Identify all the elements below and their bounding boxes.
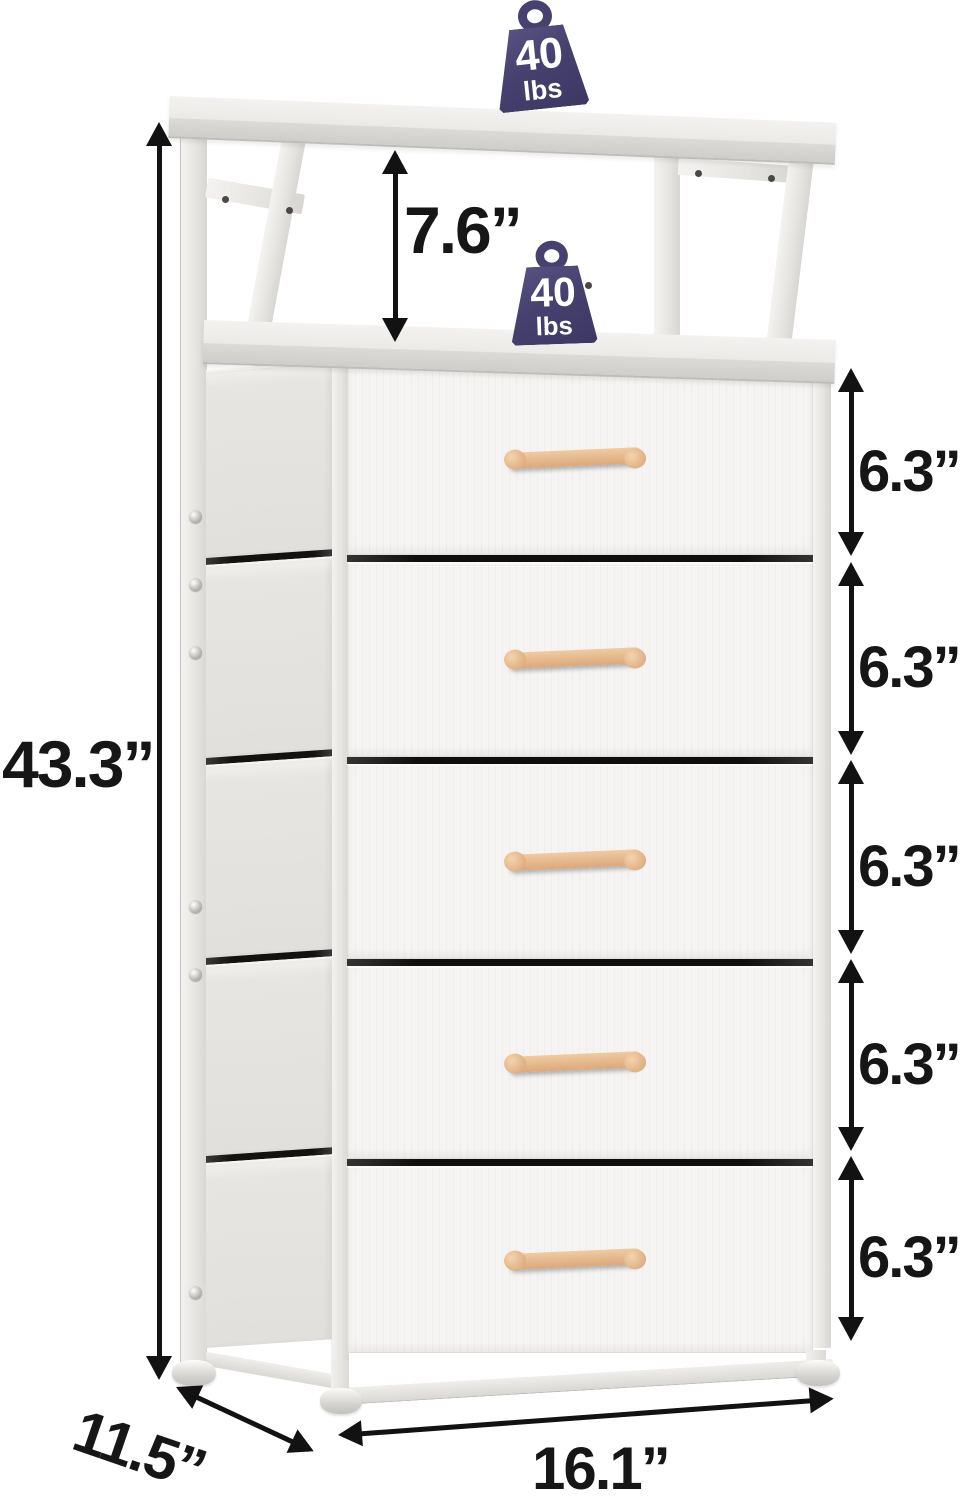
arrow-shaft [849,373,854,551]
drawer-stack [347,362,813,1353]
weight-unit: lbs [535,313,573,341]
side-panel [206,1154,332,1348]
arrow-shaft [849,964,854,1146]
bolt-icon [695,170,702,177]
drawer-4 [347,966,813,1159]
arrowhead-right-icon [809,1386,835,1414]
drawer-1-handle [507,447,644,469]
frame-post-right-rear [654,150,680,352]
drawer-4-handle [507,1051,644,1073]
arrowhead-down-icon [146,1356,172,1380]
weight-capacity-badge-top: 40 lbs [489,0,590,113]
screw-icon [189,578,202,591]
drawer-1-height-label: 6.3” [858,438,960,505]
arrow-shaft [393,155,398,337]
drawer-gap [347,757,813,764]
bolt-icon [585,282,592,289]
weight-value: 40 [530,274,577,314]
arrowhead-down-icon [838,1127,864,1151]
drawer-2-height-label: 6.3” [858,634,960,701]
width-label: 16.1” [532,1434,669,1500]
dresser-dimension-diagram: 40 lbs 40 lbs [0,0,974,1500]
weight-capacity-badge-middle: 40 lbs [508,239,597,345]
arrow-shaft [849,567,854,750]
weight-unit: lbs [522,74,564,106]
bolt-icon [286,207,293,214]
weight-body-icon: 40 lbs [491,22,589,113]
screw-icon [189,510,202,523]
arrowhead-down-icon [838,731,864,755]
drawer-gap [347,555,813,562]
drawer-3-handle [507,849,644,871]
arrowhead-down-icon [382,318,408,342]
screw-icon [189,968,202,981]
arrowhead-down-icon [838,930,864,954]
screw-icon [189,646,202,659]
side-panel [206,361,332,558]
drawer-5 [347,1166,813,1353]
drawer-3-height-label: 6.3” [858,833,960,900]
shelf-clearance-label: 7.6” [404,192,521,268]
arrow-shaft [343,1396,829,1437]
drawer-side-panels [206,361,332,1348]
bolt-icon [768,175,775,182]
side-panel [206,556,332,758]
weight-body-icon: 40 lbs [509,265,597,346]
drawer-5-handle [507,1248,644,1270]
drawer-4-height-label: 6.3” [858,1031,960,1098]
bolt-icon [222,196,229,203]
drawer-2-handle [507,647,644,669]
arrow-shaft [849,765,854,949]
frame-post-left-rear [180,118,207,1374]
side-panel [206,756,332,958]
screw-icon [189,900,202,913]
drawer-2 [347,562,813,757]
weight-value: 40 [513,33,565,79]
screw-icon [189,1286,202,1299]
base-bar-side [195,1350,335,1388]
drawer-gap [347,959,813,966]
arrowhead-down-icon [838,1317,864,1341]
drawer-5-height-label: 6.3” [858,1224,960,1291]
foot-front-right [796,1360,840,1386]
foot-front-left [320,1388,362,1414]
frame-rail-right-lower [813,356,831,1348]
side-panel [206,956,332,1156]
arrow-shaft [849,1161,854,1336]
arrowhead-down-icon [838,532,864,556]
arrow-shaft [157,127,162,1375]
drawer-1 [347,362,813,555]
overall-height-label: 43.3” [2,726,153,802]
drawer-gap [347,1159,813,1166]
depth-label: 11.5” [65,1396,214,1500]
drawer-3 [347,764,813,959]
arrowhead-right-icon [287,1429,320,1463]
